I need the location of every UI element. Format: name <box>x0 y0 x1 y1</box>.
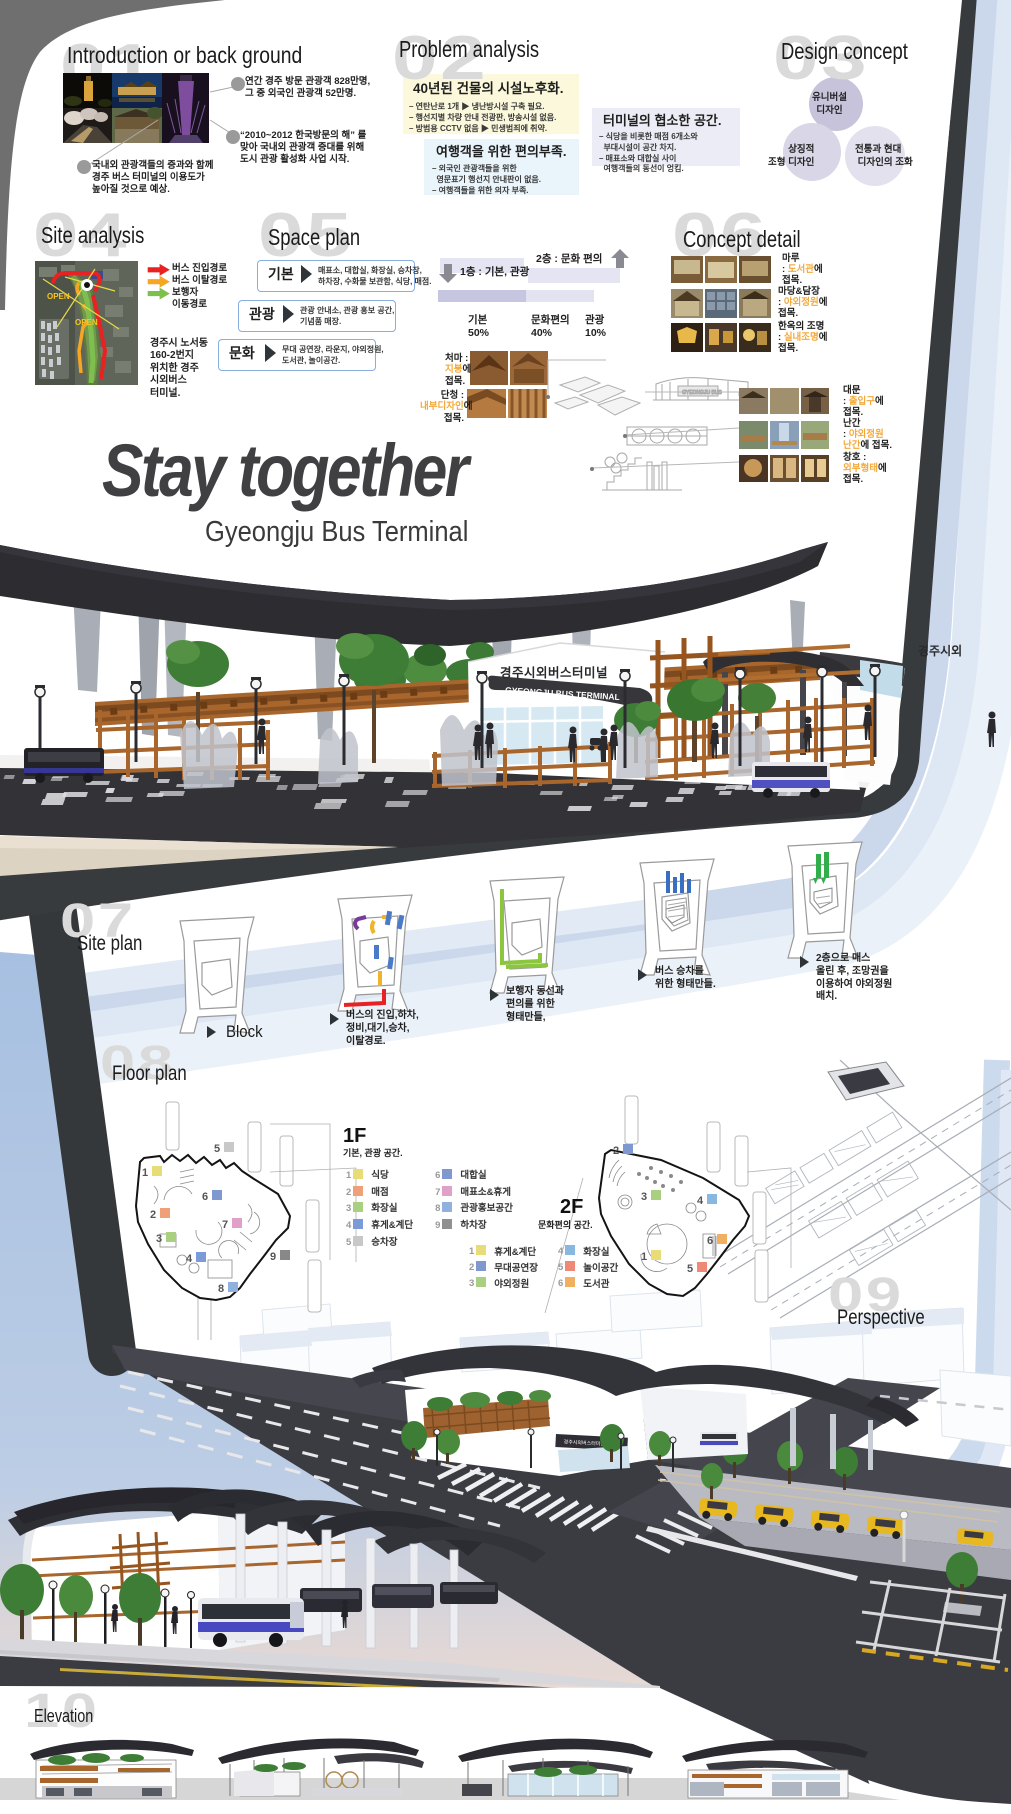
svg-text:경주시외버스터미널: 경주시외버스터미널 <box>500 665 608 680</box>
svg-text:5: 5 <box>687 1263 693 1275</box>
svg-text:4: 4 <box>697 1195 704 1207</box>
svg-text:OPEN: OPEN <box>47 292 70 301</box>
svg-text:5: 5 <box>214 1143 220 1155</box>
svg-text:OPEN: OPEN <box>75 318 98 327</box>
svg-text:경주시외: 경주시외 <box>918 643 962 658</box>
svg-text:8: 8 <box>218 1283 224 1295</box>
svg-text:6: 6 <box>202 1191 208 1203</box>
svg-text:2: 2 <box>150 1209 156 1221</box>
svg-text:3: 3 <box>156 1233 162 1245</box>
svg-text:4: 4 <box>186 1253 193 1265</box>
svg-text:9: 9 <box>270 1251 276 1263</box>
svg-text:1: 1 <box>142 1167 148 1179</box>
svg-text:7: 7 <box>222 1219 228 1231</box>
svg-text:6: 6 <box>707 1235 713 1247</box>
svg-text:1: 1 <box>641 1251 647 1263</box>
svg-text:3: 3 <box>641 1191 647 1203</box>
svg-text:2: 2 <box>613 1145 619 1157</box>
